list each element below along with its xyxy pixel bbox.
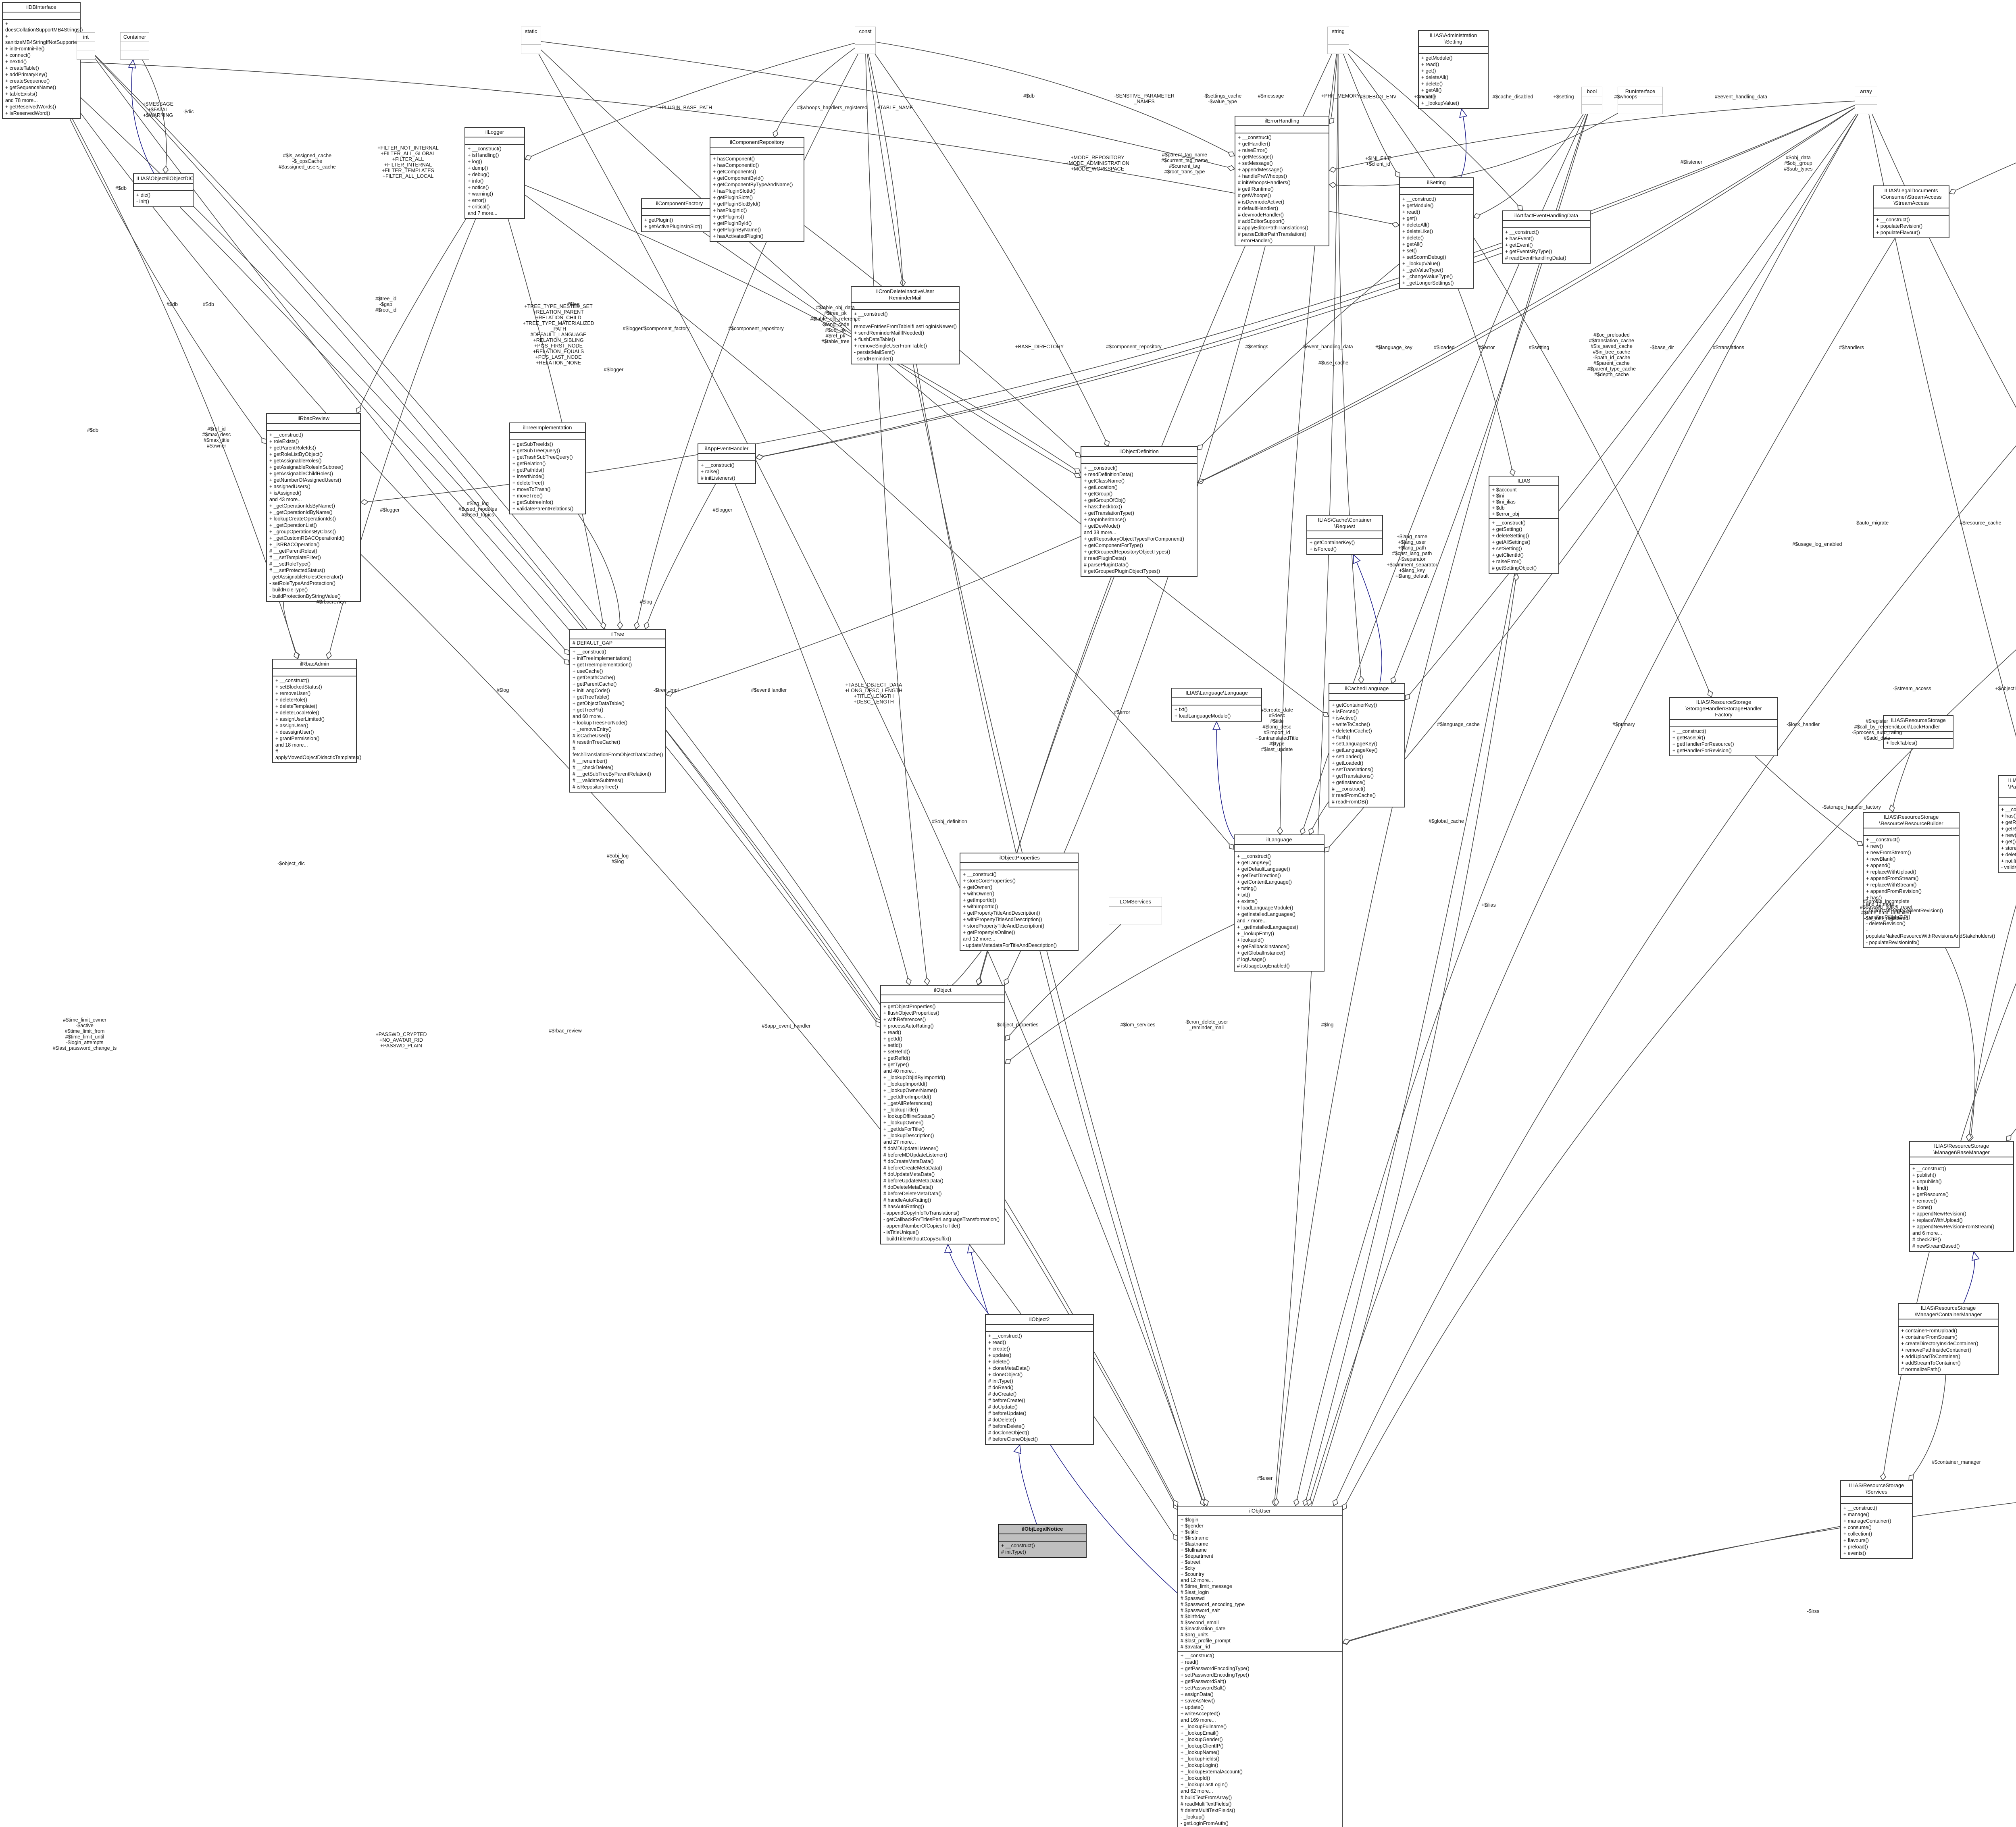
class-lockhandler[interactable]: ILIAS\ResourceStorage \Lock\LockHandler … bbox=[1883, 715, 1954, 749]
class-methods: + __construct()+ readDefinitionData()+ g… bbox=[1081, 464, 1197, 576]
class-fields bbox=[1841, 1497, 1912, 1504]
class-basemanager[interactable]: ILIAS\ResourceStorage \Manager\BaseManag… bbox=[1909, 1141, 2014, 1252]
class-containermanager[interactable]: ILIAS\ResourceStorage \Manager\Container… bbox=[1898, 1303, 1999, 1375]
class-fields bbox=[1419, 47, 1488, 54]
class-ilobjectdic[interactable]: ILIAS\Object\ilObjectDIC + dic()- init() bbox=[133, 173, 194, 207]
class-name: const bbox=[855, 27, 875, 36]
class-fields bbox=[1884, 732, 1953, 739]
class-fields bbox=[521, 36, 541, 45]
class-methods: + __construct()+ getHandler()+ raiseErro… bbox=[1235, 133, 1329, 246]
class-fields bbox=[134, 184, 193, 191]
class-methods bbox=[121, 50, 149, 59]
class-name: ILIAS\ResourceStorage \Manager\Container… bbox=[1899, 1304, 1998, 1319]
class-name: ILIAS\Administration \Setting bbox=[1419, 31, 1488, 47]
class-name: ilObject bbox=[881, 986, 1004, 995]
class-cachecontainerrequest[interactable]: ILIAS\Cache\Container \Request + getCont… bbox=[1306, 515, 1383, 555]
class-methods: + __construct()+ isHandling()+ log()+ du… bbox=[465, 145, 524, 218]
class-fields bbox=[855, 36, 875, 45]
class-name: ilSetting bbox=[1400, 178, 1473, 188]
class-collectionbuilder[interactable]: ILIAS\Export\ImportHandler \Parser\NodeI… bbox=[1998, 775, 2016, 873]
class-ilobjuser[interactable]: ilObjUser + $login+ $gender+ $utitle+ $f… bbox=[1177, 1506, 1343, 1827]
class-fields bbox=[1503, 221, 1590, 228]
class-name: array bbox=[1855, 87, 1877, 96]
class-methods: + __construct()+ raise()# initListeners(… bbox=[698, 461, 755, 483]
class-methods: + __construct()+ initTreeImplementation(… bbox=[570, 648, 665, 792]
class-illanguage[interactable]: ilLanguage + __construct()+ getLangKey()… bbox=[1234, 834, 1325, 972]
class-name: ilTreeImplementation bbox=[510, 423, 585, 433]
class-ilcron[interactable]: ilCronDeleteInactiveUser ReminderMail + … bbox=[851, 286, 960, 364]
edge-ilappeventhandler-iltree bbox=[646, 484, 716, 629]
class-name: int bbox=[77, 33, 95, 42]
edge-rsshfactory-resourcebuilder bbox=[1756, 756, 1863, 845]
class-ilobject[interactable]: ilObject + getObjectProperties()+ flushO… bbox=[880, 985, 1005, 1244]
edge-collectionbuilder-basemanager bbox=[1968, 873, 2016, 1141]
class-fields bbox=[1328, 36, 1349, 45]
class-methods: + getContainerKey()+ isForced() bbox=[1307, 539, 1382, 554]
class-name: ILIAS\ResourceStorage \Services bbox=[1841, 1481, 1912, 1497]
edge-const-ilobjectdefinition bbox=[875, 54, 1108, 446]
class-name: ilObjectProperties bbox=[960, 853, 1078, 863]
class-fields bbox=[852, 303, 959, 310]
class-methods: + __construct()+ new()+ newFromStream()+… bbox=[1864, 836, 1959, 947]
class-fields: # DEFAULT_GAP bbox=[570, 639, 665, 648]
class-rsshfactory[interactable]: ILIAS\ResourceStorage \StorageHandler\St… bbox=[1669, 697, 1778, 756]
class-name: ilErrorHandling bbox=[1235, 117, 1329, 126]
class-ilsetting[interactable]: ilSetting + __construct()+ getModule()+ … bbox=[1399, 177, 1474, 289]
class-fields bbox=[1400, 188, 1473, 195]
edge-bool-ilsetting bbox=[1474, 114, 1583, 217]
class-fields bbox=[642, 209, 717, 216]
class-name: bool bbox=[1582, 87, 1602, 96]
edge-const-ilerrorhandling bbox=[876, 42, 1235, 156]
edge-string-rsshfactory bbox=[1348, 54, 1712, 697]
class-fields bbox=[1307, 531, 1382, 539]
class-string[interactable]: string bbox=[1327, 27, 1349, 54]
edge-ildbinterface-ilrbacreview bbox=[70, 119, 266, 444]
class-methods bbox=[1328, 45, 1349, 54]
class-iltree[interactable]: ilTree # DEFAULT_GAP + __construct()+ in… bbox=[569, 629, 666, 793]
class-ilerrorhandling[interactable]: ilErrorHandling + __construct()+ getHand… bbox=[1235, 116, 1329, 246]
class-name: ILIAS\ResourceStorage \Manager\BaseManag… bbox=[1910, 1142, 2013, 1157]
class-fields bbox=[3, 12, 80, 20]
class-methods: + __construct()+ getBaseDir()+ getHandle… bbox=[1670, 727, 1777, 755]
class-fields bbox=[710, 148, 804, 155]
class-fields: + $account+ $ini+ $ini_ilias+ $db+ $erro… bbox=[1489, 486, 1558, 519]
edge-ilcachedlanguage-cachecontainerrequest bbox=[1354, 555, 1382, 683]
edge-ilsetting-ilobjectdefinition bbox=[1198, 264, 1399, 450]
edge-rsservices-ilobjuser bbox=[1343, 1526, 1840, 1643]
class-fields: + $login+ $gender+ $utitle+ $firstname+ … bbox=[1178, 1516, 1342, 1652]
edge-ilobjlegalnotice-ilobject2 bbox=[1019, 1445, 1037, 1524]
edge-resourcebuilder-basemanager bbox=[1945, 948, 1975, 1141]
edge-ilobjectdic-ilobject bbox=[180, 207, 880, 1027]
class-ildbinterface[interactable]: ilDBInterface + doesCollationSupportMB4S… bbox=[2, 2, 81, 119]
class-fields bbox=[1235, 126, 1329, 133]
class-name: ILIAS\Object\ilObjectDIC bbox=[134, 174, 193, 184]
class-fields bbox=[1329, 694, 1404, 701]
class-methods: + getModule()+ read()+ get()+ deleteAll(… bbox=[1419, 54, 1488, 108]
class-methods bbox=[1618, 105, 1662, 114]
class-fields bbox=[1081, 457, 1197, 464]
class-methods: + __construct()+ has()+ getResourceIdStr… bbox=[1999, 805, 2016, 872]
class-name: ilDBInterface bbox=[3, 3, 80, 12]
class-illogger[interactable]: ilLogger + __construct()+ isHandling()+ … bbox=[464, 127, 525, 219]
class-name: ILIAS\LegalDocuments \Consumer\StreamAcc… bbox=[1874, 186, 1949, 208]
class-methods: + getSubTreeIds()+ getSubTreeQuery()+ ge… bbox=[510, 440, 585, 514]
edge-lockhandler-resourcebuilder bbox=[1893, 749, 1912, 812]
class-lomservices[interactable]: LOMServices bbox=[1109, 897, 1162, 924]
class-name: ilObjectDefinition bbox=[1081, 447, 1197, 457]
class-methods: + dic()- init() bbox=[134, 191, 193, 206]
class-name: ilLanguage bbox=[1235, 835, 1324, 845]
class-methods: + __construct()+ hasEvent()+ getEvent()+… bbox=[1503, 228, 1590, 263]
class-ilrbacadmin[interactable]: ilRbacAdmin + __construct()+ setBlockedS… bbox=[272, 659, 357, 763]
class-methods: + __construct()+ read()+ getPasswordEnco… bbox=[1178, 1652, 1342, 1827]
class-fields bbox=[960, 863, 1078, 870]
class-name: ilCachedLanguage bbox=[1329, 684, 1404, 694]
class-fields bbox=[1899, 1319, 1998, 1327]
edge-const-ilobject bbox=[866, 54, 927, 985]
class-array[interactable]: array bbox=[1855, 87, 1877, 114]
edge-const-ilcomponentrepository bbox=[774, 48, 855, 137]
class-iltreeimpl[interactable]: ilTreeImplementation + getSubTreeIds()+ … bbox=[509, 422, 586, 514]
edge-string-ilerrorhandling bbox=[1329, 54, 1337, 124]
class-ilobjectproperties[interactable]: ilObjectProperties + __construct()+ stor… bbox=[960, 853, 1079, 951]
class-name: RunInterface bbox=[1618, 87, 1662, 96]
class-methods: + __construct()+ getModule()+ read()+ ge… bbox=[1400, 195, 1473, 288]
class-name: ilComponentRepository bbox=[710, 138, 804, 148]
class-name: ilTree bbox=[570, 630, 665, 639]
edge-storagehandlerfactory-streamaccess bbox=[1949, 93, 2016, 194]
class-methods: + __construct()+ setBlockedStatus()+ rem… bbox=[273, 676, 356, 762]
class-name: ILIAS\Language\Language bbox=[1172, 689, 1261, 698]
class-methods bbox=[521, 45, 541, 54]
class-methods: + __construct()+ publish()+ unpublish()+… bbox=[1910, 1165, 2013, 1251]
class-methods: + hasComponent()+ hasComponentId()+ getC… bbox=[710, 155, 804, 241]
edge-bool-ilobjuser bbox=[1276, 114, 1587, 1506]
class-fields bbox=[1172, 698, 1261, 705]
class-fields bbox=[121, 42, 149, 50]
class-methods: + __construct()+ removeEntriesFromTableI… bbox=[852, 310, 959, 364]
edge-runinterface-ilerrorhandling bbox=[1329, 113, 1618, 186]
class-static[interactable]: static bbox=[521, 27, 541, 54]
edge-const-illogger bbox=[525, 43, 855, 159]
class-methods: + lockTables() bbox=[1884, 739, 1953, 748]
class-name: ILIAS\ResourceStorage \Resource\Resource… bbox=[1864, 813, 1959, 828]
class-name: ilAppEventHandler bbox=[698, 444, 755, 454]
class-ilias[interactable]: ILIAS + $account+ $ini+ $ini_ilias+ $db+… bbox=[1489, 476, 1559, 574]
class-adminsetting[interactable]: ILIAS\Administration \Setting + getModul… bbox=[1418, 30, 1489, 109]
class-bool[interactable]: bool bbox=[1581, 87, 1602, 114]
class-name: ilLogger bbox=[465, 128, 524, 137]
class-fields bbox=[881, 995, 1004, 1003]
class-fields bbox=[1999, 798, 2016, 805]
edge-ilsetting-adminsetting bbox=[1461, 109, 1466, 177]
class-fields bbox=[1910, 1157, 2013, 1165]
class-methods: + __construct()+ populateRevision()+ pop… bbox=[1874, 216, 1949, 237]
class-methods bbox=[1855, 105, 1877, 114]
edge-string-ilcachedlanguage bbox=[1338, 54, 1362, 683]
class-name: ILIAS\ResourceStorage \StorageHandler\St… bbox=[1670, 698, 1777, 720]
class-name: ilObjLegalNotice bbox=[999, 1525, 1086, 1534]
class-methods: + __construct()+ manage()+ manageContain… bbox=[1841, 1504, 1912, 1558]
edge-ilobject2-ilobject bbox=[948, 1244, 989, 1314]
class-methods: + __construct()+ roleExists()+ getParent… bbox=[267, 431, 360, 601]
class-methods bbox=[1109, 915, 1162, 924]
class-methods: + __construct()+ getSetting()+ deleteSet… bbox=[1489, 519, 1558, 573]
class-fields bbox=[510, 433, 585, 440]
class-methods bbox=[1582, 105, 1602, 114]
class-runinterface[interactable]: RunInterface bbox=[1618, 87, 1663, 114]
edge-const-ilobjuser bbox=[867, 54, 1204, 1506]
class-fields bbox=[986, 1325, 1093, 1332]
class-name: ILIAS\ResourceStorage \Lock\LockHandler bbox=[1884, 716, 1953, 732]
class-fields bbox=[999, 1534, 1086, 1542]
class-methods: + containerFromUpload()+ containerFromSt… bbox=[1899, 1327, 1998, 1374]
edge-ilsetting-ilias bbox=[1458, 289, 1513, 476]
class-name: string bbox=[1328, 27, 1349, 36]
edge-iltreeimpl-iltree bbox=[579, 514, 620, 629]
class-name: ILIAS bbox=[1489, 477, 1558, 486]
edge-trait-ilobjuser bbox=[1334, 92, 2016, 1506]
class-name: ilArtifactEventHandlingData bbox=[1503, 211, 1590, 221]
class-name: ilRbacReview bbox=[267, 414, 360, 424]
edge-array-ilobjuser bbox=[1295, 114, 1858, 1506]
class-methods: + txt()+ loadLanguageModule() bbox=[1172, 705, 1261, 721]
class-fields bbox=[1864, 828, 1959, 836]
class-ilobjectdefinition[interactable]: ilObjectDefinition + __construct()+ read… bbox=[1081, 446, 1198, 577]
class-name: LOMServices bbox=[1109, 897, 1162, 907]
class-name: ILIAS\Cache\Container \Request bbox=[1307, 516, 1382, 531]
class-fields bbox=[1235, 845, 1324, 852]
edge-streamaccess-ilobjuser bbox=[1308, 238, 1895, 1506]
class-name: ilCronDeleteInactiveUser ReminderMail bbox=[852, 287, 959, 303]
class-rsservices[interactable]: ILIAS\ResourceStorage \Services + __cons… bbox=[1840, 1480, 1913, 1559]
edge-containermanager-rsservices bbox=[1909, 1375, 1946, 1480]
class-ilcomponentfactory[interactable]: ilComponentFactory + getPlugin()+ getAct… bbox=[641, 198, 718, 232]
edge-repositorypreloader-basemanager bbox=[2006, 882, 2016, 1141]
class-methods bbox=[855, 45, 875, 54]
class-int[interactable]: int bbox=[77, 32, 95, 60]
class-fields bbox=[465, 137, 524, 145]
class-name: ilComponentFactory bbox=[642, 199, 717, 209]
class-name: Container bbox=[121, 33, 149, 42]
edge-illanguage-languagelanguage bbox=[1216, 722, 1234, 839]
class-languagelanguage[interactable]: ILIAS\Language\Language + txt()+ loadLan… bbox=[1171, 688, 1262, 722]
class-container[interactable]: Container bbox=[120, 32, 149, 60]
edge-ildbinterface-ilobjuser bbox=[81, 98, 1177, 1510]
class-ilcomponentrepository[interactable]: ilComponentRepository + hasComponent()+ … bbox=[710, 137, 804, 242]
class-name: ilObject2 bbox=[986, 1315, 1093, 1325]
class-fields bbox=[1855, 96, 1877, 105]
class-ilcachedlanguage[interactable]: ilCachedLanguage + getContainerKey()+ is… bbox=[1329, 683, 1405, 807]
class-ilobjlegalnotice[interactable]: ilObjLegalNotice + __construct()# initTy… bbox=[998, 1524, 1087, 1558]
edge-static-ilerrorhandling bbox=[541, 42, 1235, 169]
edge-string-ilsetting bbox=[1343, 54, 1400, 177]
class-fields bbox=[267, 424, 360, 431]
class-fields bbox=[273, 669, 356, 676]
class-ilobject2[interactable]: ilObject2 + __construct()+ read()+ creat… bbox=[985, 1314, 1094, 1445]
class-name: static bbox=[521, 27, 541, 36]
class-ilrbacreview[interactable]: ilRbacReview + __construct()+ roleExists… bbox=[266, 413, 361, 602]
class-fields bbox=[77, 42, 95, 50]
class-methods: + getPlugin()+ getActivePluginsInSlot() bbox=[642, 216, 717, 231]
class-methods: + __construct()+ getLangKey()+ getDefaul… bbox=[1235, 852, 1324, 971]
edge-const-ilcron bbox=[868, 54, 903, 286]
class-fields bbox=[1582, 96, 1602, 105]
class-ilappeventhandler[interactable]: ilAppEventHandler + __construct()+ raise… bbox=[698, 443, 756, 484]
edge-illogger-ilrbacreview bbox=[357, 219, 466, 413]
class-ilartifactevent[interactable]: ilArtifactEventHandlingData + __construc… bbox=[1502, 210, 1591, 264]
class-methods: + doesCollationSupportMB4Strings()+ sani… bbox=[3, 20, 80, 118]
class-const[interactable]: const bbox=[855, 27, 876, 54]
class-resourcebuilder[interactable]: ILIAS\ResourceStorage \Resource\Resource… bbox=[1863, 812, 1960, 948]
class-methods: + __construct()+ read()+ create()+ updat… bbox=[986, 1332, 1093, 1444]
class-name: ILIAS\Export\ImportHandler \Parser\NodeI… bbox=[1999, 776, 2016, 798]
uml-collaboration-diagram: ilDBInterface + doesCollationSupportMB4S… bbox=[0, 0, 2016, 1827]
class-fields bbox=[1670, 720, 1777, 727]
class-name: ilObjUser bbox=[1178, 1507, 1342, 1516]
class-fields bbox=[1109, 907, 1162, 915]
edge-ilappeventhandler-ilobject bbox=[735, 484, 910, 985]
class-methods: + getContainerKey()+ isForced()+ isActiv… bbox=[1329, 701, 1404, 807]
class-methods bbox=[77, 50, 95, 59]
class-methods: + __construct()+ storeCoreProperties()+ … bbox=[960, 870, 1078, 950]
class-name: ilRbacAdmin bbox=[273, 660, 356, 669]
class-methods: + __construct()# initType() bbox=[999, 1542, 1086, 1557]
class-fields bbox=[698, 454, 755, 461]
class-streamaccess[interactable]: ILIAS\LegalDocuments \Consumer\StreamAcc… bbox=[1873, 185, 1949, 238]
class-fields bbox=[1618, 96, 1662, 105]
class-fields bbox=[1874, 208, 1949, 216]
class-methods: + getObjectProperties()+ flushObjectProp… bbox=[881, 1003, 1004, 1244]
